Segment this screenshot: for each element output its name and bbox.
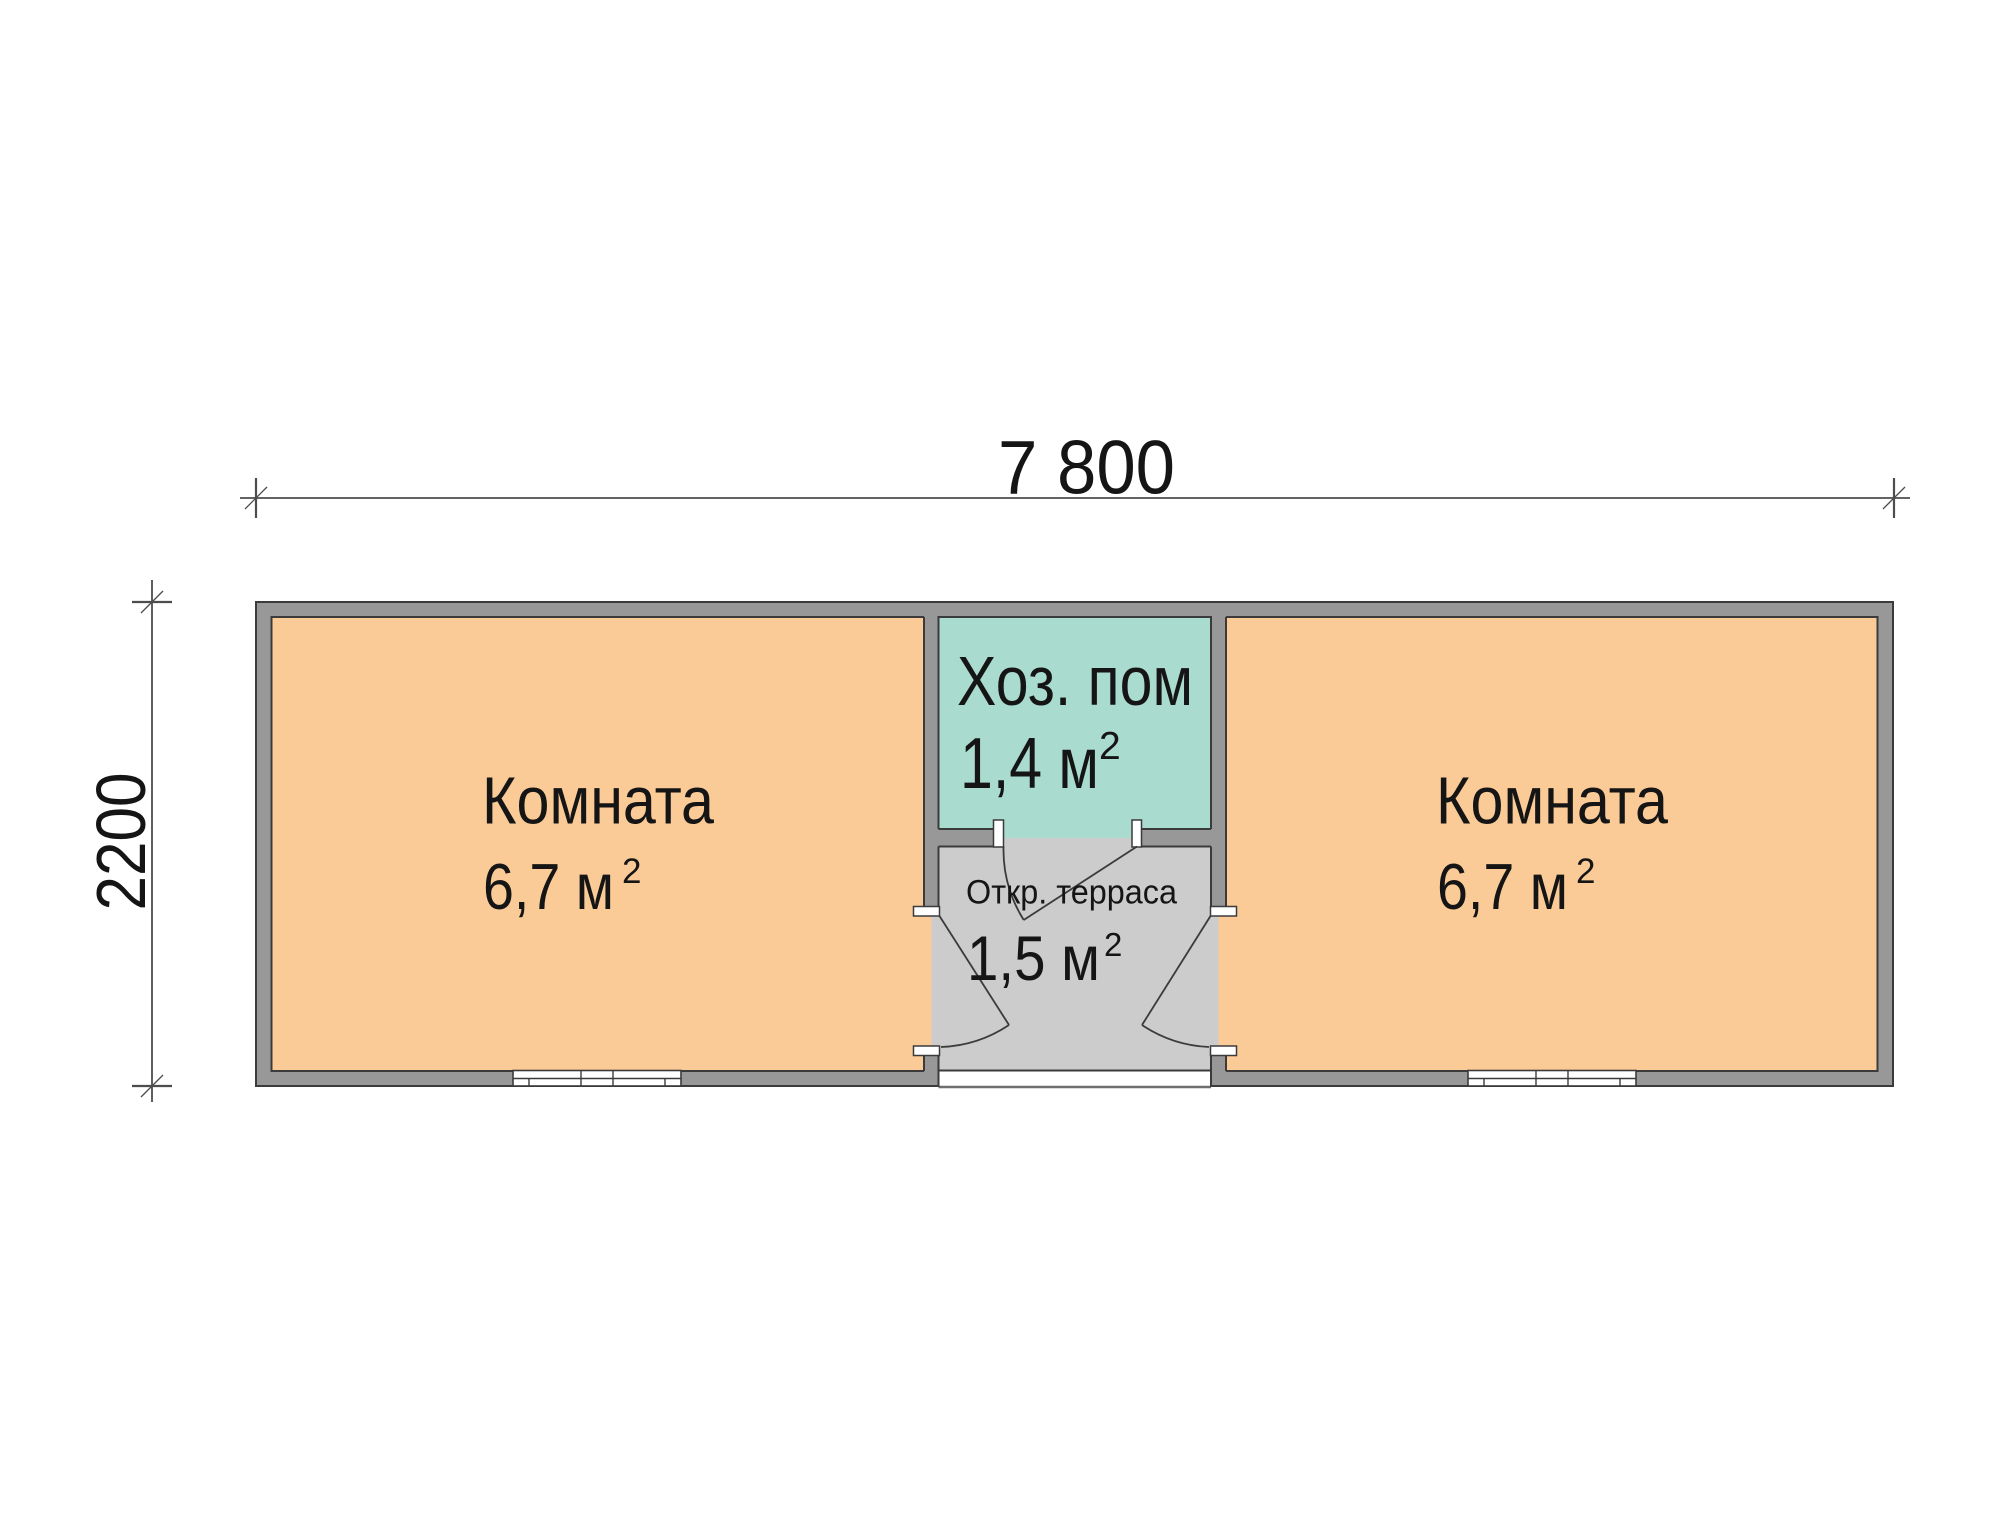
svg-text:1,4 м: 1,4 м	[960, 724, 1099, 804]
svg-text:1,5 м: 1,5 м	[967, 924, 1100, 994]
svg-text:2: 2	[1576, 852, 1595, 891]
svg-text:Откр. терраса: Откр. терраса	[966, 874, 1178, 912]
svg-text:2200: 2200	[82, 773, 160, 911]
svg-text:2: 2	[622, 852, 641, 891]
svg-text:Хоз. пом: Хоз. пом	[957, 642, 1193, 720]
svg-text:7 800: 7 800	[998, 426, 1175, 511]
svg-text:2: 2	[1104, 926, 1122, 963]
svg-text:Комната: Комната	[1436, 764, 1669, 839]
svg-text:6,7 м: 6,7 м	[483, 850, 614, 923]
svg-text:Комната: Комната	[482, 764, 715, 839]
svg-text:2: 2	[1099, 725, 1121, 768]
svg-text:6,7 м: 6,7 м	[1437, 850, 1568, 923]
